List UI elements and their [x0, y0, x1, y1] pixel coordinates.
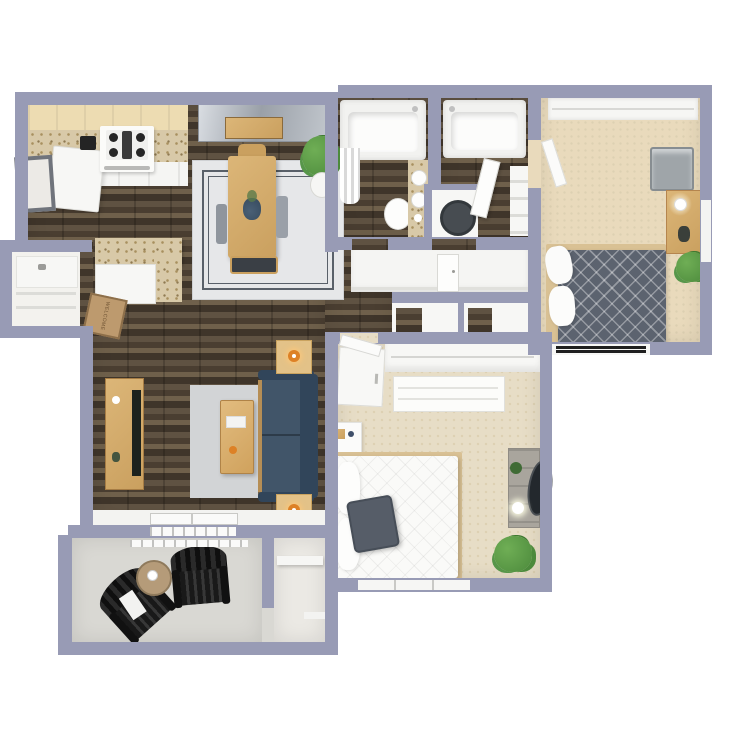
sliding-door-track	[150, 527, 236, 536]
coffee-table-tray	[226, 416, 246, 428]
wall-patio-divider	[262, 538, 274, 608]
window-sill-line	[552, 108, 694, 110]
tub-basin	[451, 112, 518, 150]
bed2-plant-icon	[494, 536, 532, 572]
adirondack-chair-1	[169, 544, 230, 609]
wall-dining-right	[325, 92, 338, 252]
pantry-shelf-line	[16, 292, 76, 295]
wall-pantry-top	[0, 240, 92, 252]
storage-shelf	[277, 556, 323, 565]
vanity-accessory	[414, 214, 422, 222]
console-decor	[112, 452, 120, 462]
dining-side-chair	[216, 204, 227, 244]
wall-patio-left	[58, 535, 72, 655]
bath-b-tub	[443, 100, 526, 158]
coffee-table	[220, 400, 254, 474]
sofa-seats	[262, 378, 300, 494]
lamp-top	[292, 354, 296, 358]
wall-left-upper	[15, 92, 28, 252]
console-table	[225, 117, 283, 139]
tv	[132, 390, 141, 476]
closet-shelf-wood	[396, 308, 422, 334]
sofa	[258, 370, 318, 502]
dresser-decor	[678, 226, 690, 242]
wall-bed2-right	[540, 332, 552, 592]
bed2-accent-pillow	[346, 494, 400, 553]
closet-rod	[391, 356, 534, 358]
patio-table-cup	[147, 570, 158, 581]
wall-patio-right	[325, 538, 338, 655]
pantry-shelf-line	[16, 306, 76, 309]
wall-bath-divider	[428, 98, 441, 186]
bath-a-door-opening	[352, 239, 388, 250]
pantry-faucet	[38, 264, 46, 270]
shower-curtain	[340, 148, 360, 204]
wall-hall-mid	[392, 292, 528, 303]
bed1-pillow	[548, 285, 577, 327]
griddle	[122, 131, 132, 159]
console-decor	[112, 396, 120, 404]
dining-bench	[230, 256, 278, 274]
storage-floor	[274, 538, 325, 642]
bed1-window-right	[701, 200, 711, 262]
door-divider	[191, 514, 193, 524]
wall-top-right	[338, 85, 712, 98]
burner-icon	[136, 148, 145, 157]
patio-pass-floor	[262, 608, 274, 642]
ac-unit	[650, 147, 694, 191]
heater-slat	[556, 346, 646, 349]
bed1-heater	[552, 344, 650, 355]
floor-plan: WELCOME	[0, 0, 750, 750]
burner-icon	[109, 148, 118, 157]
storage-shelf-low	[304, 612, 326, 619]
drawer-line	[398, 387, 498, 389]
sliding-door-glass	[150, 513, 238, 525]
wall-pantry-bottom	[0, 326, 92, 338]
bath-b-door-opening	[432, 239, 476, 250]
vanity-lamp-icon	[512, 502, 524, 514]
burner-icon	[109, 133, 118, 142]
end-table	[276, 340, 312, 374]
tub-basin	[348, 112, 418, 152]
wall-bed1-left	[528, 85, 541, 355]
sofa-seam	[262, 434, 300, 436]
wall-living-left	[80, 326, 93, 538]
water-heater-icon	[440, 200, 476, 236]
vanity-plant	[510, 462, 522, 474]
wall-patio-bottom	[58, 642, 338, 655]
sofa-wood-frame	[258, 380, 262, 492]
bath-b-shelves	[510, 166, 528, 236]
chair-seat	[177, 568, 226, 606]
welcome-mat-text: WELCOME	[99, 301, 111, 331]
bed1-door-opening	[528, 140, 541, 188]
faucet-icon	[449, 106, 455, 112]
sofa-back	[298, 374, 318, 498]
lamp-icon	[674, 198, 687, 211]
coffee-table-decor	[229, 446, 237, 454]
closet-shelf-wood	[468, 308, 492, 334]
wardrobe-handle	[375, 374, 379, 384]
centerpiece-sprigs	[247, 190, 257, 202]
faucet-icon	[412, 106, 418, 112]
wall-pantry-left	[0, 240, 12, 338]
floor-plan-canvas: WELCOME	[0, 0, 750, 750]
burner-icon	[136, 133, 145, 142]
espresso-machine	[80, 136, 96, 150]
drawer-line	[398, 398, 498, 400]
patio-door-track	[130, 540, 248, 547]
peninsula-counter-return	[154, 258, 182, 302]
oven-handle	[104, 166, 150, 170]
nightstand-decor-dark	[348, 431, 354, 437]
heater-slat	[556, 350, 646, 353]
pantry-counter	[16, 256, 78, 288]
bed1-window-top	[548, 98, 698, 120]
bed2-dresser	[393, 376, 505, 412]
bed2-closet	[385, 344, 540, 372]
door-handle-icon	[452, 270, 455, 273]
hall-door	[437, 254, 459, 292]
refrigerator	[47, 145, 105, 212]
dining-side-chair	[276, 196, 288, 238]
wall-top-main	[15, 92, 338, 105]
bed2-window	[358, 580, 470, 590]
window-mullion	[394, 580, 396, 590]
window-mullion	[432, 580, 434, 590]
